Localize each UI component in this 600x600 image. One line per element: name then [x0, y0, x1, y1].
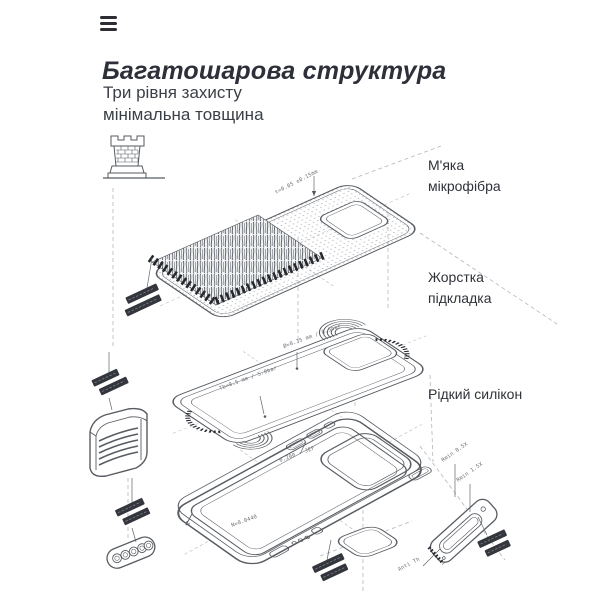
dim-anti: Anti Th	[397, 557, 421, 573]
camera-cushion-part	[333, 524, 402, 559]
hamburger-bar	[100, 28, 117, 31]
page-subtitle: Три рівня захисту мінімальна товщина	[103, 82, 264, 126]
hamburger-bar	[100, 16, 117, 19]
dim-rmin-1: Rmin 0.5X	[441, 441, 470, 464]
subtitle-line-2: мінімальна товщина	[103, 104, 264, 126]
product-slide: t=0.05 ±0.15mm Ø=0.35 mm / 0.5bar Tb=0.5…	[0, 0, 600, 600]
castle-tower-icon	[103, 136, 165, 178]
label-liquid-silicone: Рідкий силікон	[428, 384, 524, 405]
speaker-grille-part	[104, 534, 158, 571]
label-microfiber: М'яка мікрофібра	[428, 155, 524, 197]
label-hard-lining: Жорстка підкладка	[428, 267, 524, 309]
corner-bumper-part	[90, 409, 147, 477]
subtitle-line-1: Три рівня захисту	[103, 82, 264, 104]
dim-rmin-2: Rmin 1.5X	[456, 461, 485, 484]
hamburger-bar	[100, 22, 117, 25]
hamburger-menu-icon[interactable]	[100, 16, 118, 32]
